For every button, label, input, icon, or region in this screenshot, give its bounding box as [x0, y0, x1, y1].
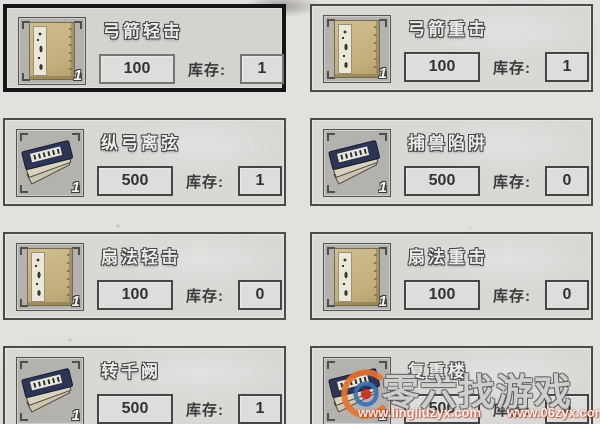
price-value: 100 — [429, 286, 456, 304]
item-card[interactable]: 1 捕兽陷阱 500 库存: 0 — [310, 118, 593, 206]
stock-value: 1 — [563, 58, 572, 76]
stock-box: 1 — [238, 166, 282, 196]
item-card[interactable]: 1 复重楼 500 库存: 0 — [310, 346, 593, 424]
blue-books-icon — [20, 133, 78, 191]
stock-value: 0 — [563, 172, 572, 190]
item-count-badge: 1 — [72, 293, 80, 310]
stock-box: 0 — [238, 280, 282, 310]
item-title: 捕兽陷阱 — [408, 129, 488, 154]
stock-box: 0 — [545, 280, 589, 310]
stock-box: 0 — [545, 166, 589, 196]
item-count-badge: 1 — [379, 407, 387, 424]
price-value: 500 — [122, 400, 149, 418]
stock-value: 0 — [563, 400, 572, 418]
price-box: 100 — [404, 280, 480, 310]
stock-label: 库存: — [188, 59, 226, 80]
item-title: 纵弓离弦 — [101, 129, 181, 154]
item-title: 弓箭轻击 — [103, 17, 183, 42]
stock-label: 库存: — [493, 171, 531, 192]
stock-box: 1 — [238, 394, 282, 424]
tan-book-icon — [334, 20, 380, 78]
blue-books-icon — [20, 361, 78, 419]
item-count-badge: 1 — [379, 179, 387, 196]
item-title: 复重楼 — [408, 357, 468, 382]
price-box: 500 — [404, 166, 480, 196]
item-count-badge: 1 — [72, 179, 80, 196]
tan-book-icon — [27, 248, 73, 306]
shop-screen: 1 弓箭轻击 100 库存: 1 — [0, 0, 600, 424]
price-box: 500 — [404, 394, 480, 424]
item-icon-frame: 1 — [323, 15, 391, 83]
stock-box: 1 — [545, 52, 589, 82]
item-card[interactable]: 1 纵弓离弦 500 库存: 1 — [3, 118, 286, 206]
stock-label: 库存: — [493, 285, 531, 306]
price-value: 500 — [429, 400, 456, 418]
item-title: 转千阙 — [101, 357, 161, 382]
blue-books-icon — [327, 361, 385, 419]
stock-label: 库存: — [186, 399, 224, 420]
item-card[interactable]: 1 扇法重击 100 库存: 0 — [310, 232, 593, 320]
stock-value: 0 — [563, 286, 572, 304]
item-icon-frame: 1 — [16, 129, 84, 197]
price-box: 100 — [97, 280, 173, 310]
stock-value: 1 — [258, 60, 267, 78]
item-card[interactable]: 1 弓箭重击 100 库存: 1 — [310, 4, 593, 92]
price-box: 100 — [99, 54, 175, 84]
item-title: 扇法轻击 — [101, 243, 181, 268]
stock-value: 1 — [256, 400, 265, 418]
price-value: 100 — [122, 286, 149, 304]
price-box: 500 — [97, 394, 173, 424]
price-value: 100 — [429, 58, 456, 76]
item-grid: 1 弓箭轻击 100 库存: 1 — [3, 4, 593, 424]
price-value: 500 — [429, 172, 456, 190]
stock-label: 库存: — [186, 285, 224, 306]
item-card[interactable]: 1 转千阙 500 库存: 1 — [3, 346, 286, 424]
price-value: 100 — [124, 60, 151, 78]
item-icon-frame: 1 — [323, 243, 391, 311]
item-count-badge: 1 — [379, 65, 387, 82]
stock-value: 1 — [256, 172, 265, 190]
item-icon-frame: 1 — [18, 17, 86, 85]
price-box: 100 — [404, 52, 480, 82]
stock-box: 1 — [240, 54, 284, 84]
stock-box: 0 — [545, 394, 589, 424]
item-card[interactable]: 1 扇法轻击 100 库存: 0 — [3, 232, 286, 320]
item-title: 扇法重击 — [408, 243, 488, 268]
price-box: 500 — [97, 166, 173, 196]
price-value: 500 — [122, 172, 149, 190]
item-icon-frame: 1 — [16, 243, 84, 311]
stock-value: 0 — [256, 286, 265, 304]
item-title: 弓箭重击 — [408, 15, 488, 40]
item-card[interactable]: 1 弓箭轻击 100 库存: 1 — [3, 4, 286, 92]
item-count-badge: 1 — [72, 407, 80, 424]
tan-book-icon — [334, 248, 380, 306]
item-icon-frame: 1 — [16, 357, 84, 424]
stock-label: 库存: — [493, 57, 531, 78]
stock-label: 库存: — [493, 399, 531, 420]
stock-label: 库存: — [186, 171, 224, 192]
item-count-badge: 1 — [379, 293, 387, 310]
item-icon-frame: 1 — [323, 129, 391, 197]
item-count-badge: 1 — [74, 67, 82, 84]
blue-books-icon — [327, 133, 385, 191]
tan-book-icon — [29, 22, 75, 80]
item-icon-frame: 1 — [323, 357, 391, 424]
